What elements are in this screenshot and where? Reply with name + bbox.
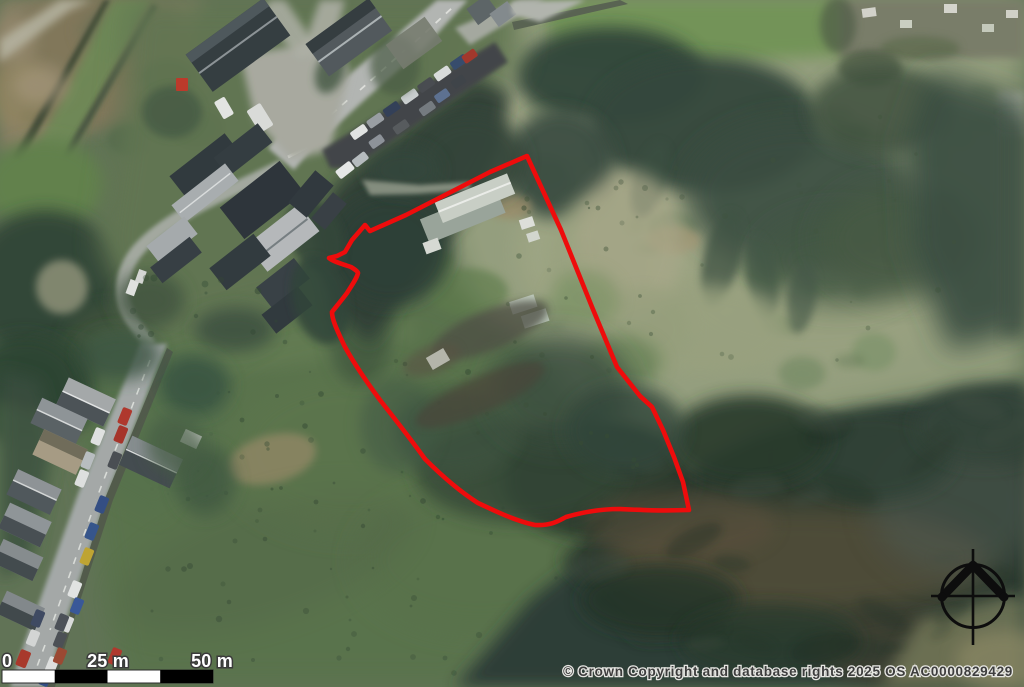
svg-text:0: 0 xyxy=(2,651,12,671)
svg-text:© Crown Copyright and database: © Crown Copyright and database rights 20… xyxy=(563,664,1013,679)
svg-text:25 m: 25 m xyxy=(87,651,129,671)
svg-text:50 m: 50 m xyxy=(191,651,233,671)
